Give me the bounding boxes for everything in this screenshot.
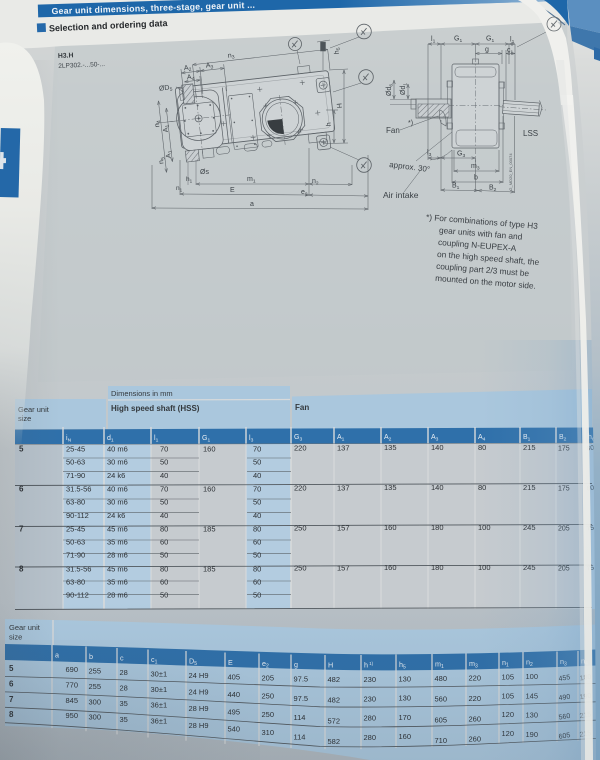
svg-text:157: 157 bbox=[337, 524, 350, 533]
svg-text:Fan: Fan bbox=[295, 403, 309, 412]
svg-text:71-90: 71-90 bbox=[66, 471, 85, 480]
svg-text:135: 135 bbox=[384, 443, 397, 452]
svg-text:45 m6: 45 m6 bbox=[107, 565, 128, 574]
svg-text:137: 137 bbox=[337, 444, 350, 453]
svg-text:90-112: 90-112 bbox=[66, 511, 89, 520]
svg-text:50: 50 bbox=[160, 551, 168, 560]
svg-text:30 m6: 30 m6 bbox=[107, 458, 128, 467]
svg-text:30 m6: 30 m6 bbox=[107, 498, 128, 507]
svg-text:LSS: LSS bbox=[523, 129, 538, 138]
svg-text:35 m6: 35 m6 bbox=[107, 538, 128, 547]
svg-text:250: 250 bbox=[294, 564, 307, 573]
svg-text:28 m6: 28 m6 bbox=[107, 591, 128, 600]
svg-text:60: 60 bbox=[160, 538, 168, 547]
svg-text:70: 70 bbox=[160, 445, 168, 454]
svg-text:H: H bbox=[336, 103, 343, 109]
svg-text:H3.H: H3.H bbox=[58, 52, 74, 60]
svg-text:160: 160 bbox=[384, 563, 397, 572]
svg-text:135: 135 bbox=[384, 483, 397, 492]
svg-text:40 m6: 40 m6 bbox=[107, 445, 128, 454]
svg-text:60: 60 bbox=[160, 578, 168, 587]
svg-text:40 m6: 40 m6 bbox=[107, 485, 128, 494]
svg-text:250: 250 bbox=[294, 524, 307, 533]
svg-text:157: 157 bbox=[337, 564, 350, 573]
svg-text:80: 80 bbox=[253, 565, 261, 574]
svg-text:63-80: 63-80 bbox=[66, 498, 85, 507]
svg-text:40: 40 bbox=[253, 511, 261, 520]
svg-text:50: 50 bbox=[160, 498, 168, 507]
svg-text:25-45: 25-45 bbox=[66, 445, 85, 454]
svg-text:50-63: 50-63 bbox=[66, 458, 85, 467]
svg-text:24 k6: 24 k6 bbox=[107, 471, 125, 480]
svg-text:40: 40 bbox=[160, 471, 168, 480]
svg-text:70: 70 bbox=[253, 445, 261, 454]
svg-text:g: g bbox=[485, 47, 489, 54]
svg-text:40: 40 bbox=[253, 471, 261, 480]
svg-text:185: 185 bbox=[203, 525, 216, 534]
svg-text:80: 80 bbox=[160, 525, 168, 534]
svg-text:28 m6: 28 m6 bbox=[107, 551, 128, 560]
svg-text:70: 70 bbox=[160, 485, 168, 494]
svg-text:60: 60 bbox=[253, 578, 261, 587]
svg-text:35 m6: 35 m6 bbox=[107, 578, 128, 587]
svg-text:50: 50 bbox=[253, 458, 261, 467]
svg-text:25-45: 25-45 bbox=[66, 525, 85, 534]
svg-text:80: 80 bbox=[253, 525, 261, 534]
svg-text:a: a bbox=[250, 201, 254, 208]
svg-text:220: 220 bbox=[294, 444, 307, 453]
svg-text:70: 70 bbox=[253, 485, 261, 494]
svg-text:Dimensions in mm: Dimensions in mm bbox=[111, 389, 173, 398]
svg-text:40: 40 bbox=[160, 511, 168, 520]
svg-text:31.5-56: 31.5-56 bbox=[66, 565, 91, 574]
svg-text:180: 180 bbox=[431, 523, 444, 532]
svg-text:Air intake: Air intake bbox=[383, 190, 419, 200]
svg-text:137: 137 bbox=[337, 484, 350, 493]
svg-text:160: 160 bbox=[384, 523, 397, 532]
svg-text:E: E bbox=[230, 187, 235, 194]
svg-text:45 m6: 45 m6 bbox=[107, 525, 128, 534]
svg-text:220: 220 bbox=[294, 484, 307, 493]
svg-text:b: b bbox=[474, 175, 478, 182]
svg-text:71-90: 71-90 bbox=[66, 551, 85, 560]
svg-text:50-63: 50-63 bbox=[66, 538, 85, 547]
svg-text:160: 160 bbox=[203, 445, 216, 454]
svg-text:High speed shaft (HSS): High speed shaft (HSS) bbox=[111, 404, 200, 413]
svg-text:180: 180 bbox=[431, 563, 444, 572]
svg-text:50: 50 bbox=[253, 551, 261, 560]
svg-text:63-80: 63-80 bbox=[66, 578, 85, 587]
svg-text:185: 185 bbox=[203, 565, 216, 574]
svg-text:31.5-56: 31.5-56 bbox=[66, 485, 91, 494]
svg-text:Fan: Fan bbox=[386, 126, 400, 135]
svg-text:60: 60 bbox=[253, 538, 261, 547]
svg-text:140: 140 bbox=[431, 443, 444, 452]
svg-text:160: 160 bbox=[203, 485, 216, 494]
svg-text:90-112: 90-112 bbox=[66, 591, 89, 600]
svg-text:*): *) bbox=[408, 120, 413, 127]
svg-text:24 k6: 24 k6 bbox=[107, 511, 125, 520]
svg-text:50: 50 bbox=[253, 498, 261, 507]
svg-text:50: 50 bbox=[160, 458, 168, 467]
svg-text:50: 50 bbox=[160, 591, 168, 600]
svg-text:G_MD20_EN_00074: G_MD20_EN_00074 bbox=[508, 153, 513, 191]
svg-text:80: 80 bbox=[160, 565, 168, 574]
svg-text:Øs: Øs bbox=[200, 169, 209, 176]
svg-text:140: 140 bbox=[431, 483, 444, 492]
svg-text:50: 50 bbox=[253, 591, 261, 600]
